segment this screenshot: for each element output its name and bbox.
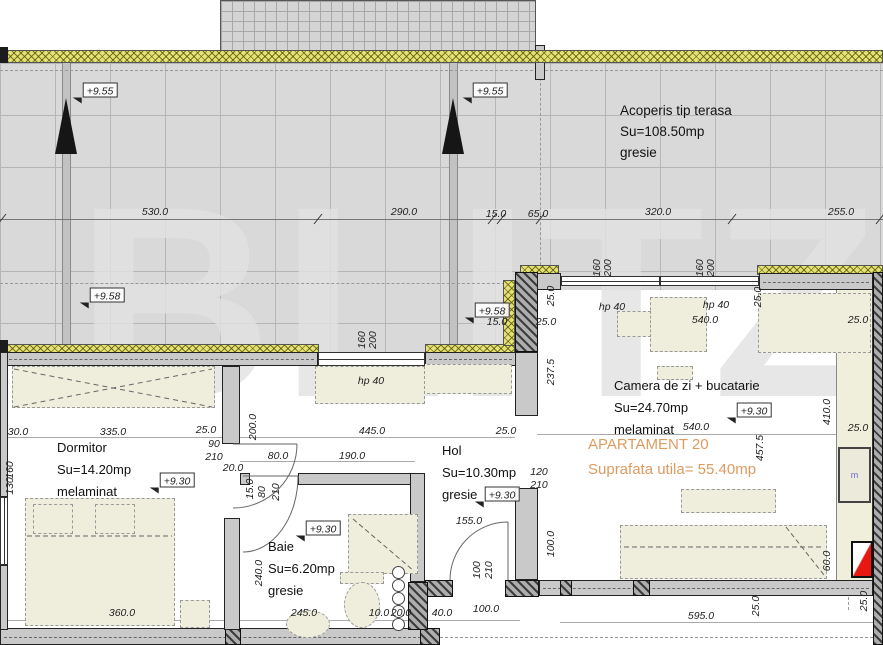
dimension-line-bottom	[560, 622, 880, 623]
wall-bedroom-bottom	[0, 628, 440, 645]
dimension-label: 120	[530, 466, 548, 478]
radiator-segment	[392, 579, 405, 592]
dimension-label: 25.0	[750, 596, 762, 616]
window-parapet-zone-bedroom	[315, 366, 425, 404]
wall-corner	[0, 47, 8, 63]
kitchen-counter-right	[758, 293, 871, 353]
pillow	[33, 504, 73, 534]
wall-hol-living-upper	[515, 272, 538, 352]
dimension-label: 100	[471, 561, 483, 579]
kitchen-counter	[650, 297, 707, 352]
dimension-label: 100.0	[545, 531, 557, 557]
wall-living-top-right	[759, 273, 873, 290]
window-parapet-zone-hol	[422, 364, 512, 394]
dimension-label: 155.0	[456, 515, 482, 527]
toilet	[344, 582, 380, 628]
meter-box: m	[838, 447, 871, 503]
room-name: Hol	[442, 440, 516, 462]
apartment-label: APARTAMENT 20 Suprafata utila= 55.40mp	[588, 432, 756, 482]
wall-outer-right	[873, 272, 883, 645]
room-area: Su=10.30mp	[442, 462, 516, 484]
wall-bath-top	[298, 473, 412, 485]
meter-label: m	[851, 470, 859, 480]
roof-finish: gresie	[620, 142, 732, 163]
axis-line	[0, 70, 883, 71]
room-name: Camera de zi + bucatarie	[614, 375, 760, 397]
wall-bath-top-stub	[240, 473, 250, 485]
apartment-usable-area: Suprafata utila= 55.40mp	[588, 457, 756, 482]
radiator-segment	[392, 618, 405, 631]
window-living-2	[660, 276, 759, 286]
level-marker: +9.30	[306, 521, 341, 536]
room-name: Dormitor	[57, 437, 131, 459]
wall-hol-bottom-left	[425, 580, 453, 597]
wall-outer-left-lower	[0, 565, 8, 630]
dimension-label: 100.0	[473, 603, 499, 615]
wall-pier	[560, 580, 572, 596]
room-label-dormitor: Dormitor Su=14.20mp melaminat	[57, 437, 131, 503]
slope-arrow-icon	[442, 98, 464, 154]
kitchen-table	[617, 311, 651, 337]
dimension-label: 210	[270, 483, 282, 501]
dimension-label: 210	[483, 561, 495, 579]
shower-tray	[348, 514, 418, 574]
dimension-label: 240.0	[253, 560, 265, 586]
room-area: Su=6.20mp	[268, 558, 335, 580]
wall-hol-living-lower	[515, 488, 538, 580]
room-finish: melaminat	[57, 481, 131, 503]
wall-hol-bottom-right	[505, 580, 539, 597]
roof-label: Acoperis tip terasa Su=108.50mp gresie	[620, 100, 732, 163]
pillow	[95, 504, 135, 534]
wall-bath-right-lower	[408, 582, 428, 630]
slope-arrow-icon	[55, 98, 77, 154]
dimension-line	[240, 461, 415, 462]
level-marker: +9.30	[160, 473, 195, 488]
wall-living-top-left	[537, 273, 561, 290]
wardrobe	[12, 366, 215, 408]
room-finish: gresie	[442, 484, 516, 506]
wall-living-bottom	[539, 580, 873, 596]
wall-hol-living-pier	[515, 352, 538, 416]
wall-outer-left-upper	[0, 352, 8, 497]
sink	[286, 610, 330, 638]
dimension-label: 40.0	[432, 607, 452, 619]
room-finish: gresie	[268, 580, 335, 602]
door-arc-hol	[450, 522, 508, 580]
wall-bedroom-right-lower	[224, 518, 240, 630]
room-label-baie: Baie Su=6.20mp gresie	[268, 536, 335, 602]
floor-plan: BLITZ m	[0, 0, 883, 645]
parapet-strip-corner	[503, 280, 515, 346]
room-area: Su=14.20mp	[57, 459, 131, 481]
room-name: Baie	[268, 536, 335, 558]
section-marker-icon	[851, 541, 873, 578]
dimension-line-top	[0, 219, 883, 220]
roof-area: Su=108.50mp	[620, 121, 732, 142]
nightstand	[180, 600, 210, 628]
upper-building-block	[220, 0, 536, 50]
radiator-segment	[392, 605, 405, 618]
parapet-strip-top	[0, 50, 883, 63]
dimension-label: 595.0	[688, 610, 714, 622]
coffee-table	[681, 489, 776, 513]
axis-line	[540, 63, 541, 275]
dimension-label: 80	[256, 486, 268, 498]
sofa	[620, 525, 827, 579]
apartment-name: APARTAMENT 20	[588, 432, 756, 457]
room-label-hol: Hol Su=10.30mp gresie	[442, 440, 516, 506]
window-living-1	[561, 276, 660, 286]
radiator-segment	[392, 592, 405, 605]
wall-pier	[225, 628, 241, 645]
window-bedroom-top	[318, 352, 425, 366]
window-bedroom-left	[0, 497, 8, 565]
level-marker-icon	[150, 488, 159, 494]
roof-title: Acoperis tip terasa	[620, 100, 732, 121]
axis-line	[0, 283, 515, 284]
wall-corner	[0, 340, 8, 352]
wall-pier	[420, 628, 440, 645]
wall-bedroom-top	[0, 352, 318, 366]
room-area: Su=24.70mp	[614, 397, 760, 419]
radiator-segment	[392, 566, 405, 579]
wall-bedroom-right-upper	[222, 366, 240, 444]
wall-pier	[633, 580, 650, 596]
